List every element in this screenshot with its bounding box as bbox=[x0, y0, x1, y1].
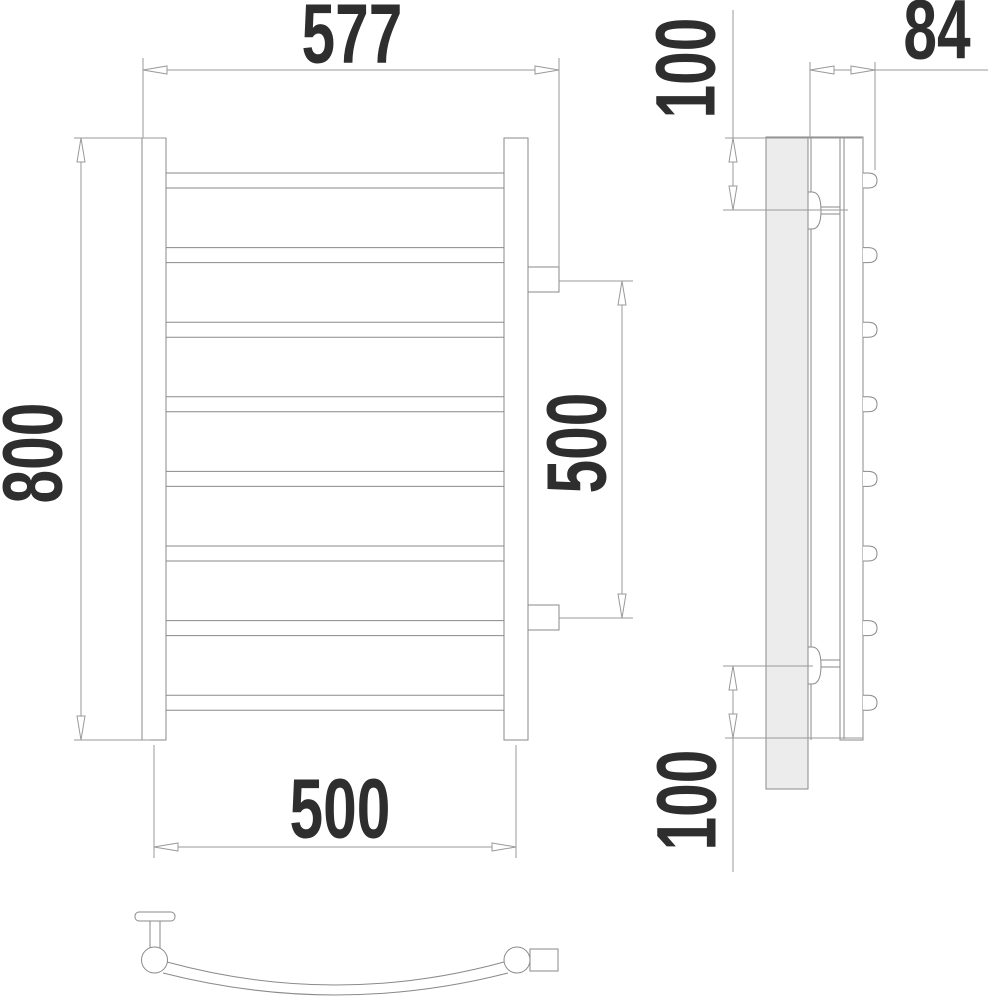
technical-drawing-canvas: 577 800 500 500 84 100 100 bbox=[0, 0, 1000, 1000]
left-post bbox=[142, 138, 166, 740]
post-profile bbox=[840, 137, 863, 740]
bar-end bbox=[863, 248, 877, 263]
bar-end bbox=[863, 397, 877, 412]
dimension-arrowhead bbox=[618, 281, 626, 305]
dimension-arrowhead bbox=[143, 66, 167, 74]
bar-end bbox=[863, 322, 877, 337]
dim-overall-width-label: 577 bbox=[302, 0, 403, 81]
rail-bar bbox=[166, 322, 504, 337]
towel-rail-drawing: 577 800 500 500 84 100 100 bbox=[0, 0, 1000, 1000]
dimension-arrowhead bbox=[154, 843, 178, 851]
dimension-arrowhead bbox=[492, 843, 516, 851]
top-bracket-front bbox=[528, 267, 559, 292]
rail-bar bbox=[166, 173, 504, 188]
bar-end bbox=[863, 621, 877, 636]
bar-end bbox=[863, 173, 877, 188]
rail-bar bbox=[166, 471, 504, 486]
bar-ends bbox=[863, 173, 877, 710]
bar-end bbox=[863, 471, 877, 486]
dimension-arrowhead bbox=[729, 714, 737, 738]
plan-right-bracket bbox=[530, 949, 558, 971]
plan-bracket-stem bbox=[150, 921, 160, 948]
rail-bar bbox=[166, 546, 504, 561]
right-post bbox=[504, 138, 528, 740]
wall-plate bbox=[766, 137, 808, 789]
dim-bottom-offset-label: 100 bbox=[640, 750, 734, 851]
plan-right-post-section bbox=[504, 947, 530, 973]
dimension-arrowhead bbox=[810, 66, 834, 74]
plan-left-post-section bbox=[142, 947, 168, 973]
dim-side-depth-label: 84 bbox=[903, 0, 971, 77]
rail-bar bbox=[166, 695, 504, 710]
bottom-bracket-front bbox=[528, 605, 559, 630]
dimension-arrows bbox=[77, 66, 875, 851]
dim-top-offset-label: 100 bbox=[639, 18, 733, 119]
dimension-arrowhead bbox=[729, 186, 737, 210]
rail-bar bbox=[166, 621, 504, 636]
dimension-arrowhead bbox=[535, 66, 559, 74]
dim-bottom-width-label: 500 bbox=[290, 762, 391, 856]
rail-bars bbox=[166, 173, 504, 710]
rung-curve-inner bbox=[167, 962, 504, 985]
rung-curve-outer bbox=[163, 973, 508, 995]
dim-bracket-spacing-label: 500 bbox=[530, 393, 624, 494]
rail-bar bbox=[166, 248, 504, 263]
dimension-arrowhead bbox=[77, 716, 85, 740]
bottom-bracket-stem bbox=[821, 660, 840, 667]
dimension-arrowhead bbox=[77, 138, 85, 162]
dim-overall-height-label: 800 bbox=[0, 403, 80, 504]
plan-bracket-flange bbox=[135, 912, 175, 921]
side-view bbox=[723, 10, 988, 872]
plan-view bbox=[135, 912, 558, 995]
dimension-arrowhead bbox=[729, 666, 737, 690]
dimension-arrowhead bbox=[729, 138, 737, 162]
bar-end bbox=[863, 695, 877, 710]
dimension-arrowhead bbox=[618, 594, 626, 618]
rail-bar bbox=[166, 397, 504, 412]
bar-end bbox=[863, 546, 877, 561]
dimension-arrowhead bbox=[851, 66, 875, 74]
